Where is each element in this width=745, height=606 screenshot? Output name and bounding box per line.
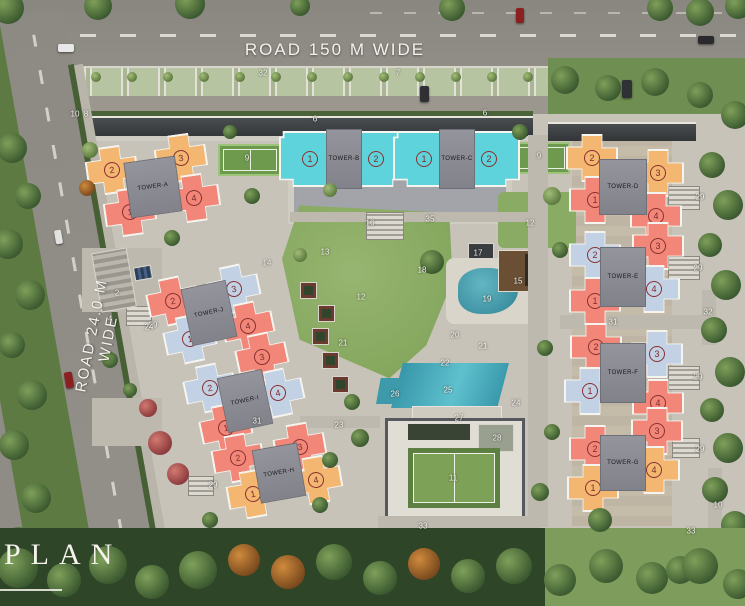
site-number-17: 17 xyxy=(474,249,483,258)
planter xyxy=(300,282,317,299)
tree xyxy=(702,477,728,503)
master-plan-scene: ROAD 150 M WIDE 2314TOWER-A12TOWER-B12TO… xyxy=(0,0,745,606)
tower-label: TOWER-H xyxy=(263,467,295,478)
tree xyxy=(487,72,497,82)
tree xyxy=(123,383,137,397)
tower-label: TOWER-I xyxy=(230,395,259,407)
tower-core-tower-d: TOWER-D xyxy=(599,159,647,215)
site-number-13: 13 xyxy=(321,248,330,257)
site-number-32: 32 xyxy=(259,69,268,78)
tree xyxy=(79,180,95,196)
tower-core-tower-h: TOWER-H xyxy=(252,442,307,503)
tree xyxy=(135,565,169,599)
tree xyxy=(139,399,157,417)
planter xyxy=(318,305,335,322)
unit-number-badge: 2 xyxy=(103,161,121,179)
car xyxy=(622,80,632,98)
site-number-9: 9 xyxy=(537,152,541,161)
site-number-31: 31 xyxy=(253,417,262,426)
tree xyxy=(351,429,369,447)
tree xyxy=(687,82,713,108)
tree xyxy=(167,463,189,485)
site-number-7: 7 xyxy=(396,69,400,78)
tree xyxy=(408,548,440,580)
site-number-8: 8 xyxy=(84,110,88,119)
tree xyxy=(552,242,568,258)
site-number-16: 16 xyxy=(366,219,375,228)
hedge-row xyxy=(78,111,533,116)
site-number-22: 22 xyxy=(441,359,450,368)
tree xyxy=(701,317,727,343)
tree xyxy=(343,72,353,82)
tree xyxy=(244,188,260,204)
walk-path xyxy=(290,212,530,222)
unit-number-badge: 4 xyxy=(239,317,258,336)
unit-number-badge: 4 xyxy=(646,281,662,297)
tree xyxy=(595,75,621,101)
road-center-dashes xyxy=(0,34,745,37)
tree xyxy=(537,340,553,356)
walk-path xyxy=(560,315,705,329)
tree xyxy=(312,497,328,513)
sports-court-west xyxy=(218,144,282,176)
site-number-19: 19 xyxy=(483,295,492,304)
tree xyxy=(179,551,217,589)
site-number-33: 33 xyxy=(687,527,696,536)
tree xyxy=(415,72,425,82)
tree xyxy=(551,66,579,94)
site-number-31: 31 xyxy=(609,318,618,327)
car xyxy=(516,8,524,23)
tree xyxy=(15,183,41,209)
tower-core-tower-b: TOWER-B xyxy=(326,129,362,189)
unit-number-badge: 4 xyxy=(269,384,288,403)
site-number-26: 26 xyxy=(391,390,400,399)
tree xyxy=(199,72,209,82)
tower-label: TOWER-J xyxy=(194,307,225,319)
tree xyxy=(713,433,743,463)
tree xyxy=(307,72,317,82)
tree xyxy=(17,380,47,410)
tree xyxy=(202,512,218,528)
site-number-29: 29 xyxy=(696,445,705,454)
tree xyxy=(496,548,532,584)
site-number-6: 6 xyxy=(483,109,487,118)
site-number-21: 21 xyxy=(479,342,488,351)
tree xyxy=(512,124,528,140)
tower-core-tower-a: TOWER-A xyxy=(123,156,182,219)
site-number-29: 29 xyxy=(694,373,703,382)
tree xyxy=(323,183,337,197)
site-number-12: 12 xyxy=(526,219,535,228)
tree xyxy=(451,72,461,82)
unit-number-badge: 4 xyxy=(185,189,203,207)
tree xyxy=(228,544,260,576)
tree xyxy=(91,72,101,82)
site-number-15: 15 xyxy=(514,277,523,286)
roof-garden xyxy=(408,424,470,440)
tree xyxy=(698,233,722,257)
site-number-23: 23 xyxy=(335,421,344,430)
tree xyxy=(164,230,180,246)
unit-number-badge: 4 xyxy=(307,471,326,490)
tree xyxy=(163,72,173,82)
site-number-32: 32 xyxy=(704,308,713,317)
tree xyxy=(544,424,560,440)
tree xyxy=(379,72,389,82)
unit-number-badge: 2 xyxy=(229,449,248,468)
unit-number-badge: 2 xyxy=(584,150,600,166)
unit-number-badge: 2 xyxy=(481,151,497,167)
tree xyxy=(531,483,549,501)
site-number-29: 29 xyxy=(696,193,705,202)
tree xyxy=(588,508,612,532)
site-number-29: 29 xyxy=(694,264,703,273)
tower-core-tower-g: TOWER-G xyxy=(600,435,646,491)
site-number-10: 10 xyxy=(71,110,80,119)
tree xyxy=(271,72,281,82)
plan-title: PLAN xyxy=(4,538,122,572)
tree xyxy=(0,430,29,460)
site-number-25: 25 xyxy=(444,386,453,395)
site-number-9: 9 xyxy=(245,154,249,163)
unit-number-badge: 3 xyxy=(650,165,666,181)
site-number-35: 35 xyxy=(426,215,435,224)
unit-number-badge: 1 xyxy=(585,480,601,496)
tower-label: TOWER-D xyxy=(607,184,638,190)
tree xyxy=(15,280,45,310)
site-number-24: 24 xyxy=(145,323,154,332)
tree xyxy=(235,72,245,82)
unit-number-badge: 4 xyxy=(646,462,662,478)
site-number-21: 21 xyxy=(339,339,348,348)
plan-title-underline xyxy=(0,589,62,591)
tree xyxy=(711,270,741,300)
unit-number-badge: 2 xyxy=(164,292,183,311)
unit-number-badge: 3 xyxy=(253,348,272,367)
unit-number-badge: 3 xyxy=(650,238,666,254)
tree xyxy=(293,248,307,262)
tree xyxy=(699,152,725,178)
tree xyxy=(344,394,360,410)
tree xyxy=(589,549,623,583)
site-number-12: 12 xyxy=(357,293,366,302)
tree xyxy=(636,562,668,594)
tree xyxy=(544,564,576,596)
tower-label: TOWER-F xyxy=(608,370,639,376)
site-number-14: 14 xyxy=(263,259,272,268)
site-number-27: 27 xyxy=(455,414,464,423)
tree xyxy=(21,483,51,513)
tower-label: TOWER-C xyxy=(441,156,472,162)
tree xyxy=(451,559,485,593)
tree xyxy=(713,190,743,220)
tree xyxy=(148,431,172,455)
tree xyxy=(127,72,137,82)
planter xyxy=(312,328,329,345)
tower-core-tower-f: TOWER-F xyxy=(600,343,646,403)
site-number-20: 20 xyxy=(451,331,460,340)
planter xyxy=(332,376,349,393)
unit-number-badge: 4 xyxy=(648,208,664,224)
unit-number-badge: 3 xyxy=(649,423,665,439)
tower-core-tower-c: TOWER-C xyxy=(439,129,475,189)
car xyxy=(420,86,429,102)
car xyxy=(58,44,74,52)
site-number-29: 29 xyxy=(209,481,218,490)
tree xyxy=(715,357,745,387)
walk-path xyxy=(378,516,540,528)
site-number-24: 24 xyxy=(512,399,521,408)
tree xyxy=(723,569,745,599)
tree xyxy=(682,548,718,584)
unit-number-badge: 2 xyxy=(368,151,384,167)
tree xyxy=(523,72,533,82)
site-number-6: 6 xyxy=(313,115,317,124)
site-number-11: 11 xyxy=(449,474,457,483)
planter xyxy=(322,352,339,369)
unit-number-badge: 1 xyxy=(582,383,598,399)
tower-core-tower-e: TOWER-E xyxy=(600,247,646,307)
unit-number-badge: 3 xyxy=(649,346,665,362)
linear-building-east xyxy=(548,122,696,141)
tower-label: TOWER-G xyxy=(607,460,639,466)
top-road-label: ROAD 150 M WIDE xyxy=(185,40,485,60)
site-number-18: 18 xyxy=(418,266,427,275)
tree xyxy=(721,101,745,129)
tree xyxy=(363,561,397,595)
site-number-33: 33 xyxy=(419,522,428,531)
tree xyxy=(641,68,669,96)
tree xyxy=(82,142,98,158)
tower-label: TOWER-B xyxy=(328,156,359,162)
tree xyxy=(316,544,352,580)
tree xyxy=(322,452,338,468)
tree xyxy=(223,125,237,139)
site-number-10: 10 xyxy=(714,501,723,510)
site-number-28: 28 xyxy=(493,434,502,443)
car xyxy=(698,36,714,44)
tree xyxy=(543,187,561,205)
tree xyxy=(700,398,724,422)
tower-label: TOWER-E xyxy=(607,274,638,280)
tree xyxy=(271,555,305,589)
unit-number-badge: 1 xyxy=(416,151,432,167)
tower-label: TOWER-A xyxy=(137,182,169,192)
tree xyxy=(0,332,25,358)
unit-number-badge: 1 xyxy=(302,151,318,167)
